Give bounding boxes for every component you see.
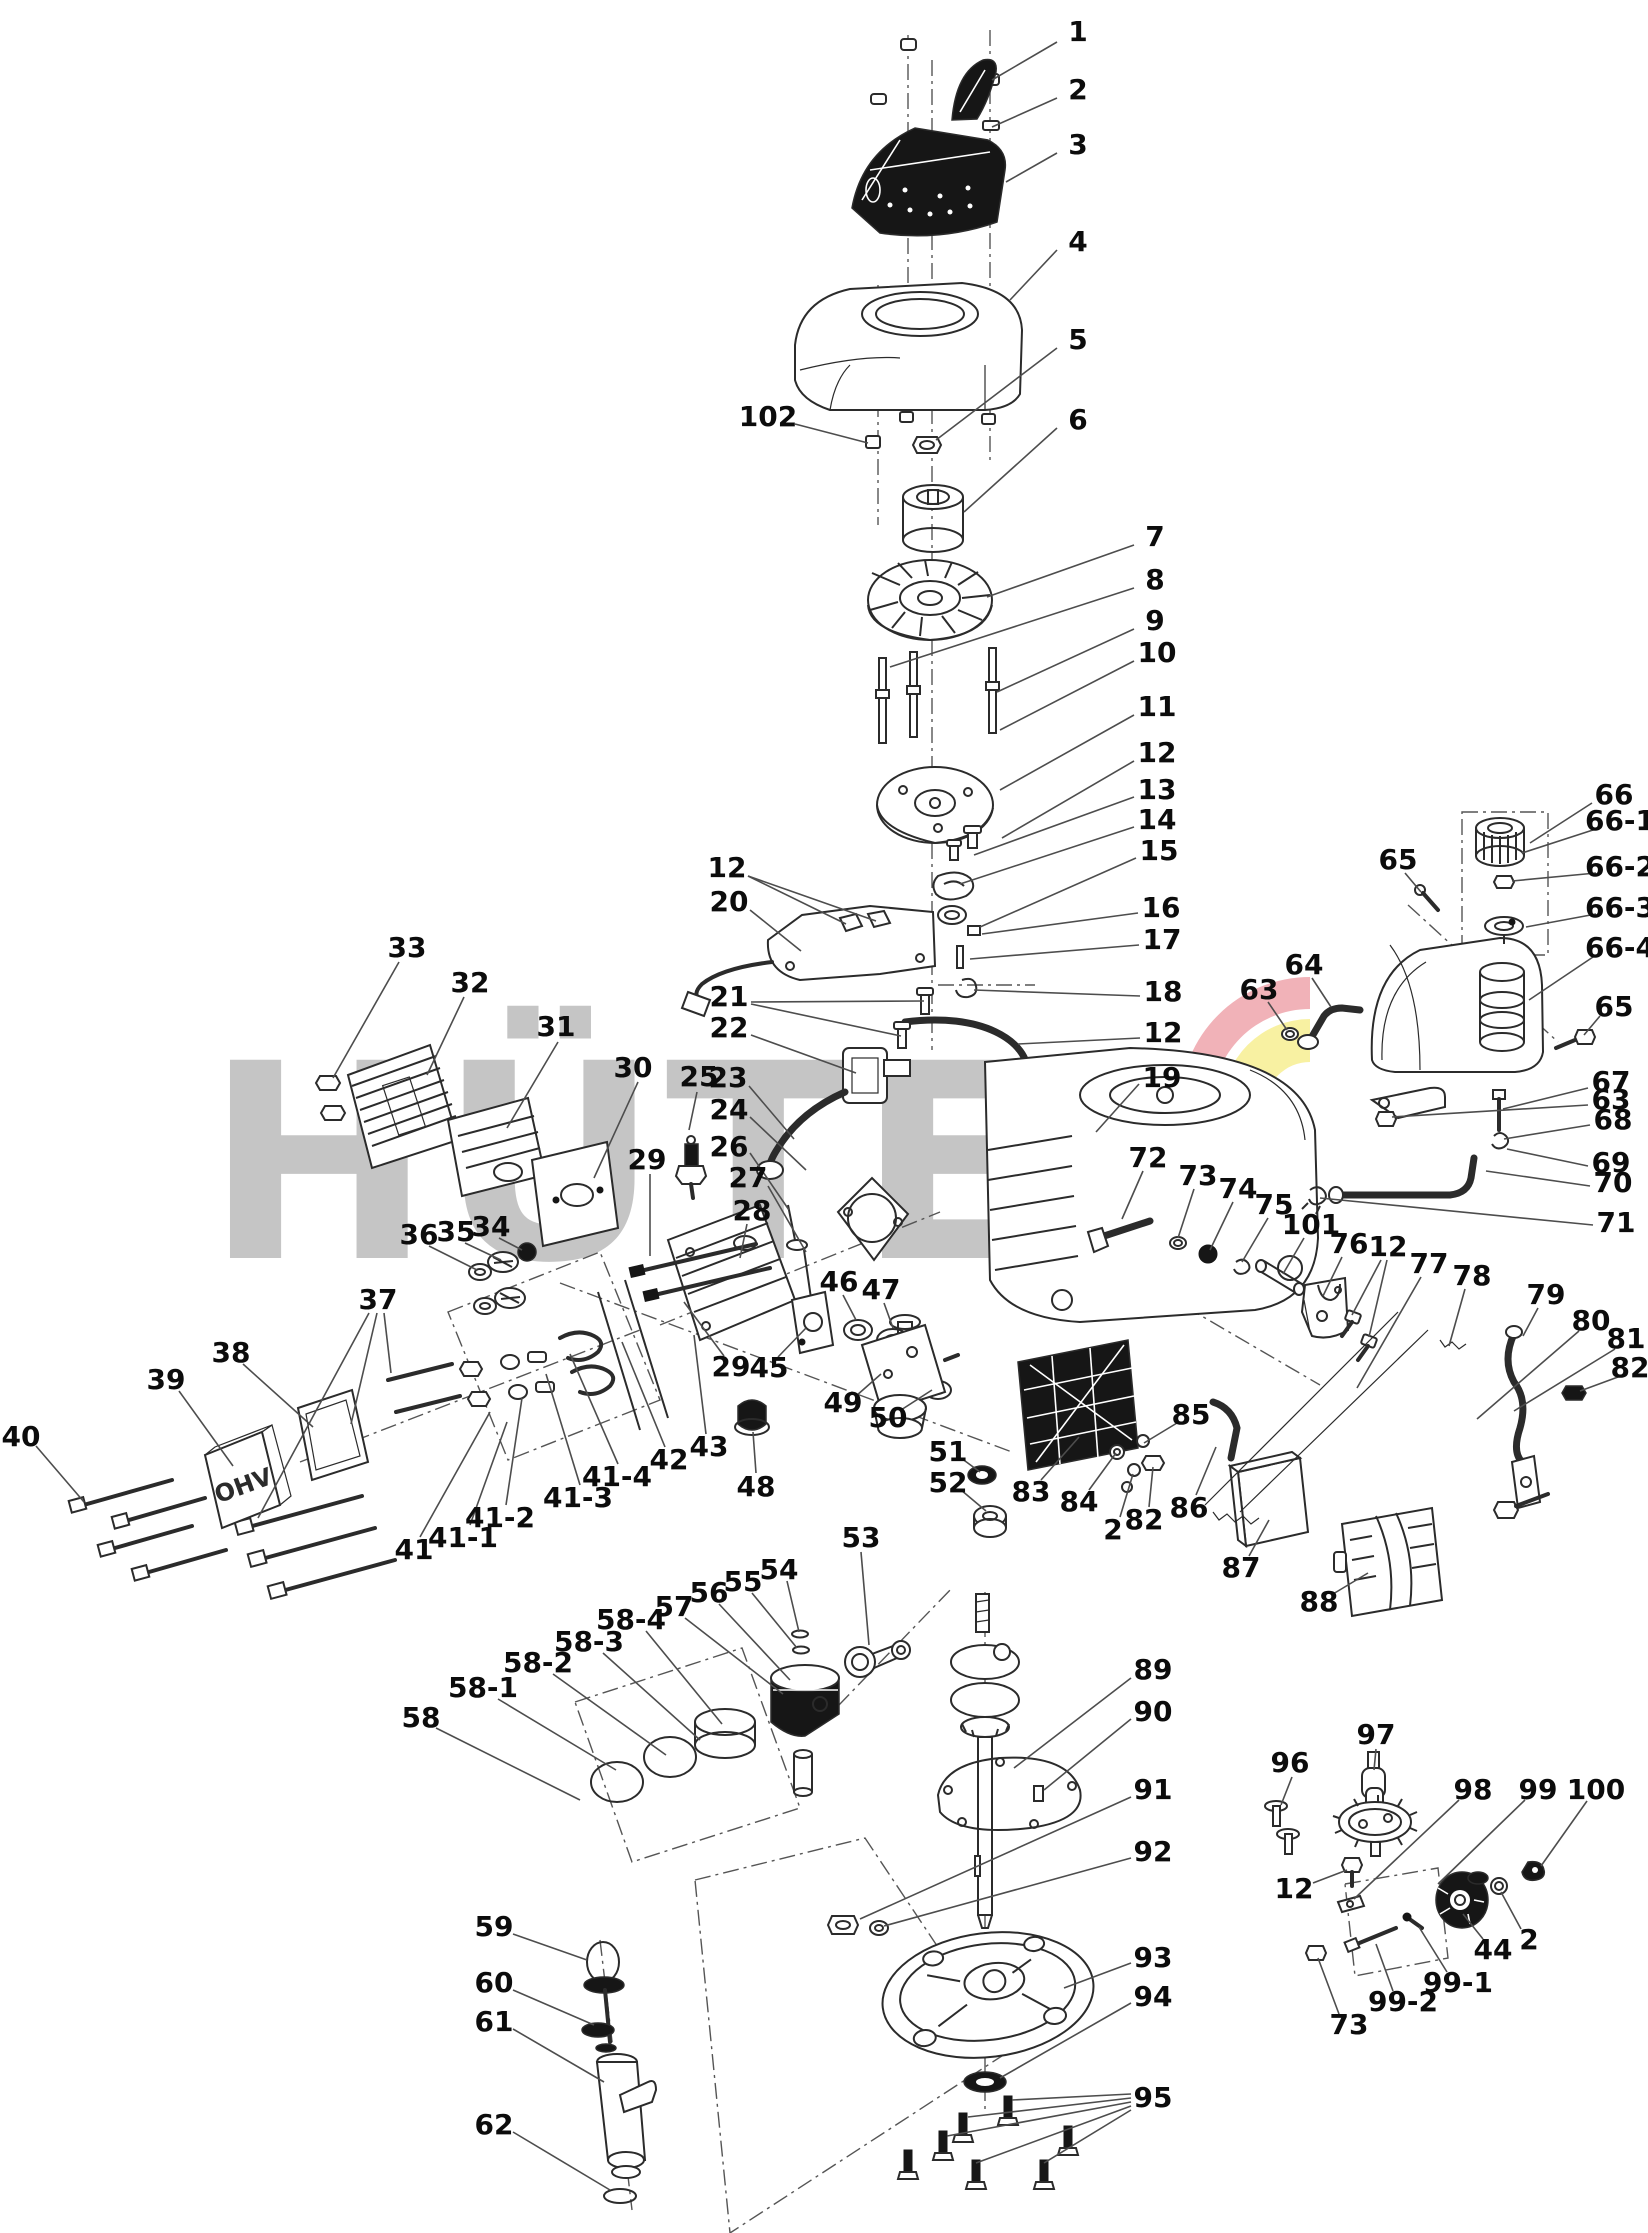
leader-4-3 <box>1010 250 1057 300</box>
callout-48-53: 48 <box>737 1473 776 1501</box>
leader-89-72 <box>1014 1678 1131 1768</box>
callout-94-77: 94 <box>1134 1983 1173 2011</box>
leader-12-21 <box>748 876 876 921</box>
leader-33-35 <box>333 962 399 1078</box>
callout-29-126: 29 <box>712 1353 751 1381</box>
callout-64-118: 64 <box>1285 951 1324 979</box>
leader-99-82 <box>1438 1800 1525 1884</box>
callout-20-22: 20 <box>710 888 749 916</box>
callout-12-96: 12 <box>1369 1233 1408 1261</box>
leader-5-4 <box>936 348 1057 440</box>
leader-17-17 <box>970 945 1139 959</box>
leader-99-2-88 <box>1376 1944 1393 1991</box>
leader-14-14 <box>960 827 1134 884</box>
leader-78-98 <box>1449 1289 1465 1346</box>
leader-90-73 <box>1044 1719 1131 1790</box>
callout-92-75: 92 <box>1134 1838 1173 1866</box>
callout-97-80: 97 <box>1357 1721 1396 1749</box>
leader-47-52 <box>884 1303 893 1328</box>
leader-98-81 <box>1354 1800 1459 1899</box>
leader-12-96 <box>1369 1260 1387 1337</box>
callout-66-3-114: 66-3 <box>1585 894 1648 922</box>
leader-12-12 <box>1002 761 1134 838</box>
leader-42-48 <box>622 1342 665 1447</box>
leader-66-111 <box>1530 803 1592 843</box>
leader-73-91 <box>1178 1189 1194 1238</box>
callout-41-4-47: 41-4 <box>582 1463 652 1491</box>
leader-64-118 <box>1312 978 1331 1007</box>
leader-40-42 <box>36 1446 84 1502</box>
leader-81-101 <box>1514 1349 1615 1411</box>
leader-12-84 <box>1313 1870 1347 1883</box>
leader-29-126 <box>684 1302 724 1356</box>
callout-13-13: 13 <box>1138 776 1177 804</box>
leader-95-78 <box>947 2102 1131 2136</box>
callout-84-104: 84 <box>1060 1488 1099 1516</box>
callout-79-99: 79 <box>1527 1281 1566 1309</box>
callout-65-116: 65 <box>1379 846 1418 874</box>
callout-42-48: 42 <box>650 1446 689 1474</box>
callout-81-101: 81 <box>1607 1325 1646 1353</box>
leader-41-4-47 <box>570 1354 618 1464</box>
leader-96-79 <box>1281 1777 1292 1805</box>
callout-72-90: 72 <box>1129 1144 1168 1172</box>
callout-60-69: 60 <box>475 1969 514 1997</box>
callout-4-3: 4 <box>1068 228 1087 256</box>
callout-18-18: 18 <box>1144 978 1183 1006</box>
callout-40-42: 40 <box>2 1423 41 1451</box>
callout-5-4: 5 <box>1068 326 1087 354</box>
leader-91-74 <box>860 1797 1131 1919</box>
callout-82-102: 82 <box>1611 1354 1648 1382</box>
callout-96-79: 96 <box>1271 1749 1310 1777</box>
leader-58-3-64 <box>603 1653 700 1740</box>
callout-27-29: 27 <box>729 1164 768 1192</box>
leader-68-122 <box>1504 1125 1590 1139</box>
leader-86-108 <box>1196 1447 1216 1495</box>
leader-69-123 <box>1507 1149 1588 1166</box>
callout-12-84: 12 <box>1275 1875 1314 1903</box>
leader-62-71 <box>513 2132 610 2190</box>
callout-56-61: 56 <box>690 1579 729 1607</box>
callout-66-4-115: 66-4 <box>1585 934 1648 962</box>
leader-3-2 <box>1006 153 1057 182</box>
callout-12-12: 12 <box>1138 739 1177 767</box>
callout-71-125: 71 <box>1597 1209 1636 1237</box>
leader-53-58 <box>861 1552 869 1645</box>
callout-37-39: 37 <box>359 1286 398 1314</box>
callout-99-82: 99 <box>1519 1776 1558 1804</box>
callout-89-72: 89 <box>1134 1656 1173 1684</box>
callout-93-76: 93 <box>1134 1944 1173 1972</box>
leader-19-20 <box>1096 1084 1139 1132</box>
callout-14-14: 14 <box>1138 806 1177 834</box>
callout-85-107: 85 <box>1172 1401 1211 1429</box>
callout-33-35: 33 <box>388 934 427 962</box>
callout-19-20: 19 <box>1143 1064 1182 1092</box>
leader-1-0 <box>992 42 1057 80</box>
leader-54-59 <box>787 1581 799 1632</box>
leader-37-39 <box>384 1313 391 1373</box>
callout-63-119: 63 <box>1240 976 1279 1004</box>
leader-63-121 <box>1392 1105 1588 1117</box>
exploded-parts-diagram: HÜTER <box>0 0 1648 2233</box>
callout-66-2-113: 66-2 <box>1585 853 1648 881</box>
callout-12-21: 12 <box>708 854 747 882</box>
callout-82-106: 82 <box>1125 1506 1164 1534</box>
leader-61-70 <box>513 2029 604 2082</box>
callout-36-38: 36 <box>400 1221 439 1249</box>
callout-15-15: 15 <box>1140 837 1179 865</box>
leader-23-25 <box>749 1086 794 1139</box>
leader-83-103 <box>1041 1437 1079 1480</box>
callout-95-78: 95 <box>1134 2084 1173 2112</box>
callout-3-2: 3 <box>1068 131 1087 159</box>
callout-6-5: 6 <box>1068 406 1087 434</box>
leader-22-24 <box>751 1035 856 1073</box>
callout-86-108: 86 <box>1170 1494 1209 1522</box>
callout-12-19: 12 <box>1144 1019 1183 1047</box>
leader-11-11 <box>1000 715 1134 790</box>
leader-8-8 <box>890 588 1134 667</box>
callout-91-74: 91 <box>1134 1776 1173 1804</box>
callout-43-49: 43 <box>690 1433 729 1461</box>
leader-41-2-45 <box>506 1398 522 1505</box>
leader-76-95 <box>1323 1257 1342 1296</box>
callout-16-16: 16 <box>1142 894 1181 922</box>
leader-10-10 <box>1000 661 1134 730</box>
leader-95-78 <box>976 2106 1131 2163</box>
callout-49-54: 49 <box>824 1389 863 1417</box>
callout-80-100: 80 <box>1572 1307 1611 1335</box>
leader-28-30 <box>740 1224 747 1258</box>
callout-53-58: 53 <box>842 1524 881 1552</box>
leader-74-92 <box>1210 1202 1233 1250</box>
leader-25-27 <box>689 1092 697 1130</box>
leader-55-60 <box>752 1593 797 1648</box>
leader-12-21 <box>748 876 846 924</box>
callout-30-32: 30 <box>614 1054 653 1082</box>
leader-9-9 <box>997 629 1134 692</box>
callout-32-34: 32 <box>451 969 490 997</box>
leader-101-94 <box>1283 1238 1304 1274</box>
callout-31-33: 31 <box>537 1013 576 1041</box>
callout-26-28: 26 <box>710 1133 749 1161</box>
leader-63-119 <box>1268 1002 1287 1030</box>
leader-71-125 <box>1320 1198 1593 1225</box>
leader-59-68 <box>513 1934 587 1960</box>
callout-35-37: 35 <box>437 1218 476 1246</box>
leader-58-1-66 <box>498 1699 616 1770</box>
leader-73-89 <box>1318 1958 1339 2014</box>
leader-100-83 <box>1541 1801 1587 1866</box>
callout-78-98: 78 <box>1453 1262 1492 1290</box>
callout-100-83: 100 <box>1567 1776 1625 1804</box>
callout-2-105: 2 <box>1103 1516 1122 1544</box>
callout-68-122: 68 <box>1594 1106 1633 1134</box>
callout-102-6: 102 <box>739 403 797 431</box>
callout-47-52: 47 <box>862 1276 901 1304</box>
leader-72-90 <box>1122 1171 1143 1219</box>
callout-46-51: 46 <box>820 1268 859 1296</box>
callout-88-110: 88 <box>1300 1588 1339 1616</box>
leader-58-67 <box>436 1728 580 1800</box>
leader-79-99 <box>1523 1308 1538 1336</box>
callout-52-57: 52 <box>929 1469 968 1497</box>
callout-99-2-88: 99-2 <box>1368 1988 1438 2016</box>
leader-56-61 <box>719 1604 790 1680</box>
leader-60-69 <box>513 1990 594 2025</box>
callout-70-124: 70 <box>1594 1169 1633 1197</box>
callout-66-1-112: 66-1 <box>1585 807 1648 835</box>
leader-48-53 <box>753 1432 756 1473</box>
leader-37-39 <box>351 1313 377 1424</box>
callout-59-68: 59 <box>475 1913 514 1941</box>
leader-7-7 <box>987 545 1134 597</box>
leader-20-22 <box>750 910 801 951</box>
callout-41-2-45: 41-2 <box>465 1504 535 1532</box>
callout-10-10: 10 <box>1138 639 1177 667</box>
leader-lines-layer <box>0 0 1648 2233</box>
callout-51-56: 51 <box>929 1438 968 1466</box>
callout-25-27: 25 <box>680 1063 719 1091</box>
leader-39-41 <box>179 1391 233 1466</box>
leader-2-1 <box>992 98 1057 127</box>
callout-11-11: 11 <box>1138 693 1177 721</box>
callout-38-40: 38 <box>212 1339 251 1367</box>
callout-22-24: 22 <box>710 1014 749 1042</box>
callout-34-36: 34 <box>472 1213 511 1241</box>
leader-27-29 <box>768 1186 806 1252</box>
leader-12-19 <box>1018 1038 1140 1044</box>
leader-70-124 <box>1486 1171 1590 1186</box>
leader-6-5 <box>964 428 1057 512</box>
callout-55-60: 55 <box>724 1568 763 1596</box>
callout-2-86: 2 <box>1519 1926 1538 1954</box>
callout-62-71: 62 <box>475 2111 514 2139</box>
callout-73-91: 73 <box>1179 1162 1218 1190</box>
callout-76-95: 76 <box>1330 1230 1369 1258</box>
callout-39-41: 39 <box>147 1366 186 1394</box>
leader-82-106 <box>1149 1467 1153 1507</box>
leader-95-78 <box>1012 2094 1131 2100</box>
leader-13-13 <box>974 797 1134 855</box>
leader-32-34 <box>427 997 464 1075</box>
callout-17-17: 17 <box>1143 926 1182 954</box>
leader-102-6 <box>795 424 868 443</box>
callout-28-30: 28 <box>733 1197 772 1225</box>
callout-44-85: 44 <box>1474 1936 1513 1964</box>
leader-46-51 <box>843 1295 856 1320</box>
callout-65-117: 65 <box>1595 993 1634 1021</box>
callout-29-31: 29 <box>628 1146 667 1174</box>
callout-50-55: 50 <box>869 1404 908 1432</box>
callout-58-1-66: 58-1 <box>448 1674 518 1702</box>
leader-80-100 <box>1477 1331 1579 1419</box>
callout-74-92: 74 <box>1219 1175 1258 1203</box>
callout-90-73: 90 <box>1134 1698 1173 1726</box>
leader-75-93 <box>1242 1218 1268 1262</box>
callout-77-97: 77 <box>1410 1250 1449 1278</box>
leader-38-40 <box>243 1364 313 1427</box>
callout-21-23: 21 <box>710 983 749 1011</box>
leader-97-80 <box>1374 1749 1376 1770</box>
callout-73-89: 73 <box>1330 2011 1369 2039</box>
callout-1-0: 1 <box>1068 18 1087 46</box>
callout-61-70: 61 <box>475 2008 514 2036</box>
callout-45-50: 45 <box>750 1354 789 1382</box>
leader-43-49 <box>694 1335 706 1434</box>
leader-58-4-63 <box>646 1631 722 1724</box>
leader-93-76 <box>1064 1963 1131 1988</box>
leader-94-77 <box>1000 2003 1131 2078</box>
callout-98-81: 98 <box>1454 1776 1493 1804</box>
leader-21-23 <box>751 1004 901 1036</box>
callout-2-1: 2 <box>1068 76 1087 104</box>
callout-58-67: 58 <box>402 1704 441 1732</box>
leader-66-2-113 <box>1512 873 1596 881</box>
callout-87-109: 87 <box>1222 1554 1261 1582</box>
callout-24-26: 24 <box>710 1096 749 1124</box>
callout-9-9: 9 <box>1145 607 1164 635</box>
leader-77-97 <box>1357 1277 1421 1388</box>
callout-54-59: 54 <box>760 1556 799 1584</box>
callout-7-7: 7 <box>1145 523 1164 551</box>
callout-83-103: 83 <box>1012 1478 1051 1506</box>
leader-21-23 <box>751 1001 924 1002</box>
leader-95-78 <box>1044 2110 1131 2163</box>
leader-18-18 <box>974 990 1140 996</box>
leader-2-86 <box>1501 1892 1521 1929</box>
leader-41-3-46 <box>546 1374 580 1485</box>
leader-31-33 <box>507 1042 558 1128</box>
callout-8-8: 8 <box>1145 566 1164 594</box>
